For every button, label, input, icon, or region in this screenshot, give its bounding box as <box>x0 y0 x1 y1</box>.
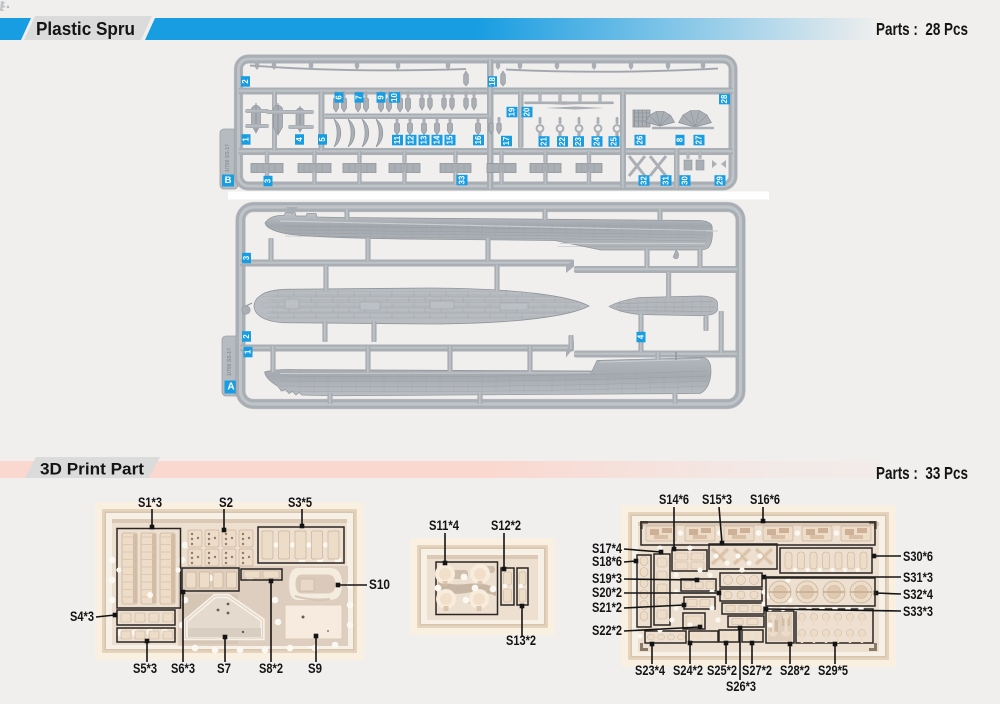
svg-text:S12*2: S12*2 <box>491 518 521 533</box>
svg-text:S28*2: S28*2 <box>780 663 810 678</box>
svg-text:Parts : 33 Pcs: Parts : 33 Pcs <box>876 463 968 483</box>
svg-text:1: 1 <box>242 137 251 142</box>
svg-text:1/700 SS-1?: 1/700 SS-1? <box>225 144 231 172</box>
svg-text:8: 8 <box>676 137 685 142</box>
svg-text:S29*5: S29*5 <box>818 663 848 678</box>
svg-text:12: 12 <box>407 135 416 144</box>
svg-text:S15*3: S15*3 <box>702 492 732 507</box>
svg-text:31: 31 <box>662 176 671 185</box>
svg-text:S14*6: S14*6 <box>659 492 689 507</box>
svg-text:S8*2: S8*2 <box>259 661 283 676</box>
svg-text:3: 3 <box>242 255 251 260</box>
svg-text:S22*2: S22*2 <box>592 623 622 638</box>
svg-text:10: 10 <box>390 93 399 102</box>
svg-text:1: 1 <box>244 349 253 354</box>
svg-text:16: 16 <box>474 135 483 144</box>
svg-text:25: 25 <box>610 137 619 146</box>
svg-text:6: 6 <box>335 95 344 100</box>
svg-text:S21*2: S21*2 <box>592 600 622 615</box>
svg-text:S1*3: S1*3 <box>138 495 162 510</box>
svg-text:S3*5: S3*5 <box>288 495 312 510</box>
svg-text:2: 2 <box>242 334 251 339</box>
svg-text:5: 5 <box>318 137 327 142</box>
svg-text:27: 27 <box>695 136 704 145</box>
svg-text:15: 15 <box>446 135 455 144</box>
svg-text:S5*3: S5*3 <box>133 661 157 676</box>
svg-text:S32*4: S32*4 <box>903 587 933 602</box>
svg-text:S30*6: S30*6 <box>903 549 933 564</box>
svg-text:18: 18 <box>488 77 497 86</box>
svg-text:7: 7 <box>355 95 364 99</box>
svg-text:S7: S7 <box>217 661 231 676</box>
svg-text:4: 4 <box>295 137 304 142</box>
svg-text:28: 28 <box>720 94 729 103</box>
svg-text:S4*3: S4*3 <box>70 609 94 624</box>
svg-text:22: 22 <box>558 137 567 146</box>
svg-text:S33*3: S33*3 <box>903 604 933 619</box>
svg-text:S9: S9 <box>308 661 322 676</box>
svg-text:S27*2: S27*2 <box>742 663 772 678</box>
svg-text:S16*6: S16*6 <box>750 492 780 507</box>
svg-text:S13*2: S13*2 <box>506 633 536 648</box>
svg-text:30: 30 <box>681 176 690 185</box>
svg-text:S11*4: S11*4 <box>429 518 459 533</box>
svg-text:Parts : 28 Pcs: Parts : 28 Pcs <box>876 19 968 39</box>
svg-text:24: 24 <box>593 137 602 146</box>
svg-text:S19*3: S19*3 <box>592 571 622 586</box>
svg-text:29: 29 <box>716 176 725 185</box>
svg-text:9: 9 <box>377 95 386 100</box>
svg-text:S10: S10 <box>369 577 390 592</box>
svg-text:32: 32 <box>640 176 649 185</box>
svg-text:S31*3: S31*3 <box>903 570 933 585</box>
svg-text:17: 17 <box>502 137 511 146</box>
svg-text:4: 4 <box>637 334 646 339</box>
svg-text:S18*6: S18*6 <box>592 554 622 569</box>
svg-text:B: B <box>225 175 232 186</box>
svg-text:S2: S2 <box>219 495 233 510</box>
svg-text:3: 3 <box>264 178 273 183</box>
svg-text:3D Print Part: 3D Print Part <box>40 461 145 479</box>
svg-text:23: 23 <box>574 137 583 146</box>
svg-text:S24*2: S24*2 <box>673 663 703 678</box>
svg-text:26: 26 <box>636 135 645 144</box>
svg-text:S23*4: S23*4 <box>635 663 665 678</box>
svg-text:33: 33 <box>458 175 467 184</box>
svg-text:13: 13 <box>420 135 429 144</box>
svg-text:11: 11 <box>393 135 402 144</box>
svg-text:S26*3: S26*3 <box>726 679 756 694</box>
svg-text:Plastic Spru: Plastic Spru <box>36 18 135 39</box>
svg-text:1/700 SS-1?: 1/700 SS-1? <box>227 348 233 376</box>
svg-text:A: A <box>227 382 234 393</box>
svg-text:2: 2 <box>241 79 250 84</box>
svg-text:S20*2: S20*2 <box>592 585 622 600</box>
svg-text:20: 20 <box>523 107 532 116</box>
svg-text:S6*3: S6*3 <box>171 661 195 676</box>
svg-text:14: 14 <box>433 135 442 144</box>
svg-text:S25*2: S25*2 <box>707 663 737 678</box>
svg-text:21: 21 <box>540 137 549 146</box>
svg-text:19: 19 <box>508 107 517 116</box>
